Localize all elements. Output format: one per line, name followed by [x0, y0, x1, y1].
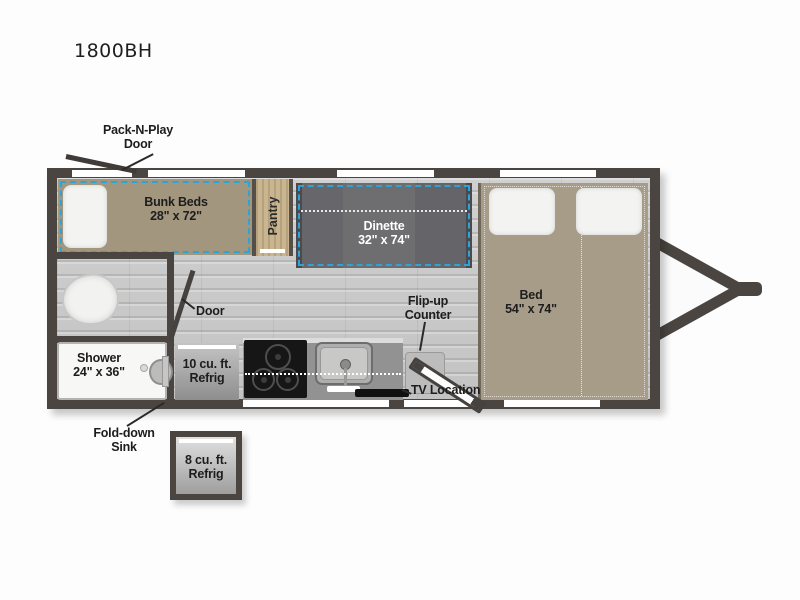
shower-drain — [140, 364, 148, 372]
pantry-cabinet: Pantry — [252, 179, 293, 256]
shower-size: 24" x 36" — [73, 365, 125, 379]
refrigerator-10cuft-label: 10 cu. ft. Refrig — [175, 357, 239, 385]
bunk-pillow — [63, 185, 107, 248]
trailer-hitch — [648, 228, 770, 350]
trailer-body: Bunk Beds 28" x 72" Pantry Dinette 32" x… — [47, 168, 660, 409]
dinette-dotted-line — [301, 210, 467, 212]
cooktop-burner — [276, 368, 299, 391]
pack-n-play-door-callout: Pack-N-Play Door — [88, 123, 188, 151]
door-callout: Door — [196, 304, 224, 318]
fold-down-sink-callout: Fold-down Sink — [84, 426, 164, 454]
cooktop-burner — [252, 368, 275, 391]
refrigerator-8cuft-label: 8 cu. ft. Refrig — [176, 453, 236, 481]
refrigerator-8cuft: 8 cu. ft. Refrig — [170, 431, 242, 500]
bed-pillow-right — [576, 188, 642, 235]
flip-up-line2: Counter — [405, 308, 452, 322]
refrig10-line1: 10 cu. ft. — [183, 357, 232, 371]
bunk-label: Bunk Beds 28" x 72" — [104, 195, 248, 223]
window-dinette — [337, 170, 434, 177]
cooktop — [244, 340, 307, 398]
flip-up-counter-callout: Flip-up Counter — [397, 294, 459, 322]
window-bed-front — [500, 170, 596, 177]
model-title: 1800BH — [74, 40, 153, 62]
pack-n-play-line2: Door — [124, 137, 152, 151]
bed-pillow-left — [489, 188, 555, 235]
pantry-label: Pantry — [266, 197, 280, 236]
fold-down-sink-fixture — [149, 359, 173, 385]
dinette-label: Dinette 32" x 74" — [296, 219, 472, 247]
pack-n-play-line1: Pack-N-Play — [103, 123, 173, 137]
shower-name: Shower — [77, 351, 121, 365]
pantry-shelf — [260, 249, 285, 253]
refrigerator-10cuft: 10 cu. ft. Refrig — [175, 343, 239, 400]
window-kitchen — [243, 400, 389, 407]
refrig8-line2: Refrig — [189, 467, 224, 481]
window-bed-rear — [504, 400, 600, 407]
bed-size: 54" x 74" — [505, 302, 557, 316]
floorplan-sheet: 1800BH Pack-N-Play Door Bunk Beds 28" x … — [0, 0, 800, 600]
bathroom-wall-top — [47, 252, 173, 259]
counter-dotted-line — [245, 373, 401, 375]
dinette-size: 32" x 74" — [358, 233, 410, 247]
bunk-size: 28" x 72" — [150, 209, 202, 223]
kitchen-sink — [315, 342, 373, 385]
bunk-name: Bunk Beds — [144, 195, 208, 209]
fold-down-line1: Fold-down — [93, 426, 154, 440]
bed-name: Bed — [519, 288, 542, 302]
fold-down-line2: Sink — [111, 440, 137, 454]
tv-location-callout: TV Location — [411, 383, 480, 397]
cooktop-burner — [265, 344, 291, 370]
refrigerator-8cuft-top — [179, 439, 233, 443]
window-bunk — [148, 170, 245, 177]
bunk-beds-area: Bunk Beds 28" x 72" — [58, 179, 252, 255]
refrig10-line2: Refrig — [190, 371, 225, 385]
fold-down-sink-bracket — [162, 356, 169, 387]
flip-up-line1: Flip-up — [408, 294, 448, 308]
dinette-name: Dinette — [364, 219, 405, 233]
faucet-stem — [344, 368, 347, 387]
dinette-area: Dinette 32" x 74" — [296, 183, 472, 268]
bed-label: Bed 54" x 74" — [481, 288, 581, 316]
refrig8-line1: 8 cu. ft. — [185, 453, 227, 467]
bed-area: Bed 54" x 74" — [478, 183, 648, 400]
refrigerator-10cuft-top — [178, 345, 236, 349]
shower-label: Shower 24" x 36" — [61, 351, 137, 379]
